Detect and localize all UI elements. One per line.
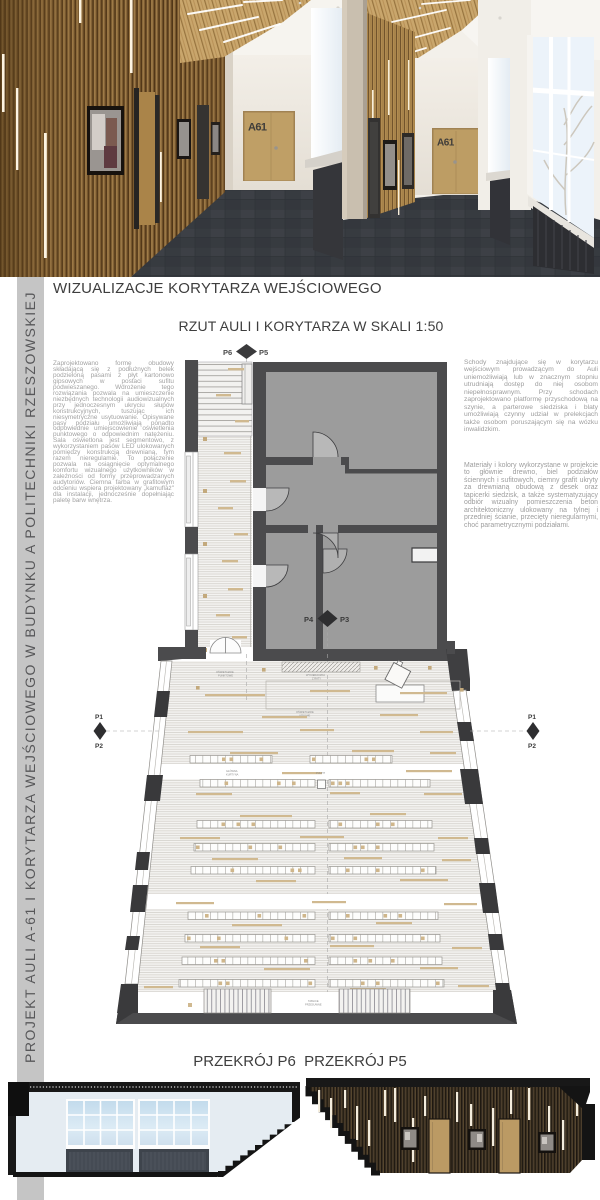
svg-text:P5: P5 [259,348,268,357]
svg-text:P1: P1 [528,714,536,721]
svg-text:PUNKTOWE: PUNKTOWE [218,673,233,677]
svg-text:TABLICE: TABLICE [308,999,319,1003]
svg-text:KURTYNA: KURTYNA [226,772,239,776]
svg-text:P2: P2 [95,743,103,750]
svg-text:PRZESUWNE: PRZESUWNE [305,1002,322,1006]
svg-text:P2: P2 [528,743,536,750]
svg-text:P4: P4 [304,615,314,624]
svg-text:WYCIERACZKA: WYCIERACZKA [306,673,325,677]
svg-text:P6: P6 [223,348,232,357]
svg-text:P1: P1 [95,714,103,721]
svg-text:Z RATY: Z RATY [312,676,321,680]
svg-text:A61: A61 [248,122,267,134]
svg-text:PULPIT: PULPIT [316,771,325,775]
svg-text:A61: A61 [437,138,455,149]
svg-text:P3: P3 [340,615,349,624]
